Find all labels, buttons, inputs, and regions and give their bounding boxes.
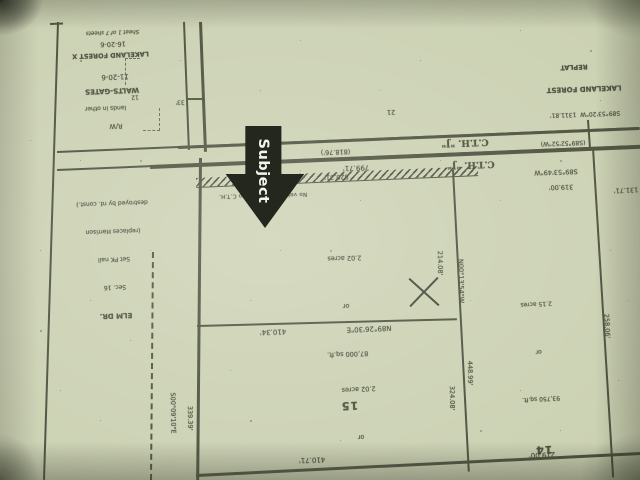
road-west-edge-north — [183, 22, 190, 150]
monument-block: ELM DR. Sec. 16 Set PK nail (replaces Ha… — [57, 178, 171, 341]
highway-distance-south: 799.71' — [330, 162, 382, 173]
lot14-area: 93,750 sq.ft. — [509, 393, 573, 404]
section-label: Sec. 16 — [61, 280, 169, 293]
row-mark-1: 12 — [127, 93, 143, 101]
lot14-acres: 2.15 acres — [504, 298, 568, 309]
highway-name-upper: C.T.H. "J" — [430, 135, 500, 149]
lot16-or: or — [318, 431, 403, 444]
row-mark-2: 33' — [172, 98, 188, 106]
replat-bearing: S89°53'20"W 1311.81' — [531, 108, 639, 119]
section-ref-1: 16-20-6 — [88, 39, 138, 49]
monument-note-2: (replaces Harrison — [59, 225, 167, 238]
row-mark-3: 21 — [382, 108, 400, 117]
title-note-2: R/W — [103, 122, 129, 131]
divider-length: 410.34' — [245, 326, 301, 337]
plat-drawing-layer: Sheet 1 of 7 sheets 16-20-6 LAKELAND FOR… — [0, 0, 640, 480]
monument-note-1: Set PK nail — [60, 252, 168, 265]
highway-south-line-bold — [150, 145, 640, 169]
lot14-or: or — [506, 346, 570, 357]
east-upper-length: 214.08' — [435, 223, 445, 303]
row-tick — [186, 98, 202, 100]
east-lower-length: 448.99' — [465, 333, 475, 413]
road-edge-south-vertical — [196, 158, 202, 480]
east-upper-bearing: N00°13'54"W — [456, 241, 466, 321]
section-ref-2: 11-20-6 — [90, 71, 140, 81]
highway-name-lower: C.T.H. "J" — [436, 157, 506, 171]
lot16-south-length: 410.71' — [286, 454, 338, 465]
road-side-bearing: S00°09'10"E — [168, 368, 178, 458]
monument-note-3: destroyed by rd. const.) — [58, 197, 166, 210]
border-top-tick — [50, 23, 63, 25]
street-name: ELM DR. — [62, 308, 170, 323]
title-note-1: lands in other — [68, 103, 143, 113]
highway-bearing-south: S89°53'49"W — [520, 167, 592, 178]
row-bracket-lower — [143, 108, 160, 131]
sheet-note: Sheet 1 of 7 sheets — [70, 27, 155, 37]
highway-distance-measured: 820.31' — [306, 172, 366, 182]
plat-map-photo: Sheet 1 of 7 sheets 16-20-6 LAKELAND FOR… — [0, 0, 640, 480]
replat-title: REPLAT — [548, 62, 600, 72]
plat-name: LAKELAND FOREST X — [58, 49, 163, 61]
frontage-east-1: 319.00' — [541, 182, 581, 192]
lot15-acres: 2.02 acres — [300, 253, 388, 264]
replat-plat-name: LAKELAND FOREST — [538, 82, 630, 94]
lot16-acres: 2.02 acres — [316, 383, 401, 396]
road-east-edge-north — [199, 22, 206, 152]
photocopy-speckles-large — [0, 0, 2, 2]
lot15-or: or — [302, 301, 390, 312]
frontage-east-2: 131.71' — [606, 185, 640, 195]
lot14-label-block: 14 93,750 sq.ft. or 2.15 acres — [502, 258, 578, 480]
subject-arrow-label: Subject — [255, 138, 271, 203]
road-side-length: 339.39' — [185, 378, 195, 458]
lot14-east-length: 258.06' — [601, 286, 613, 366]
highway-distance-record: (818.76') — [305, 147, 365, 157]
page-border-line — [43, 22, 59, 480]
east-lower-length-2: 324.08' — [447, 358, 457, 438]
